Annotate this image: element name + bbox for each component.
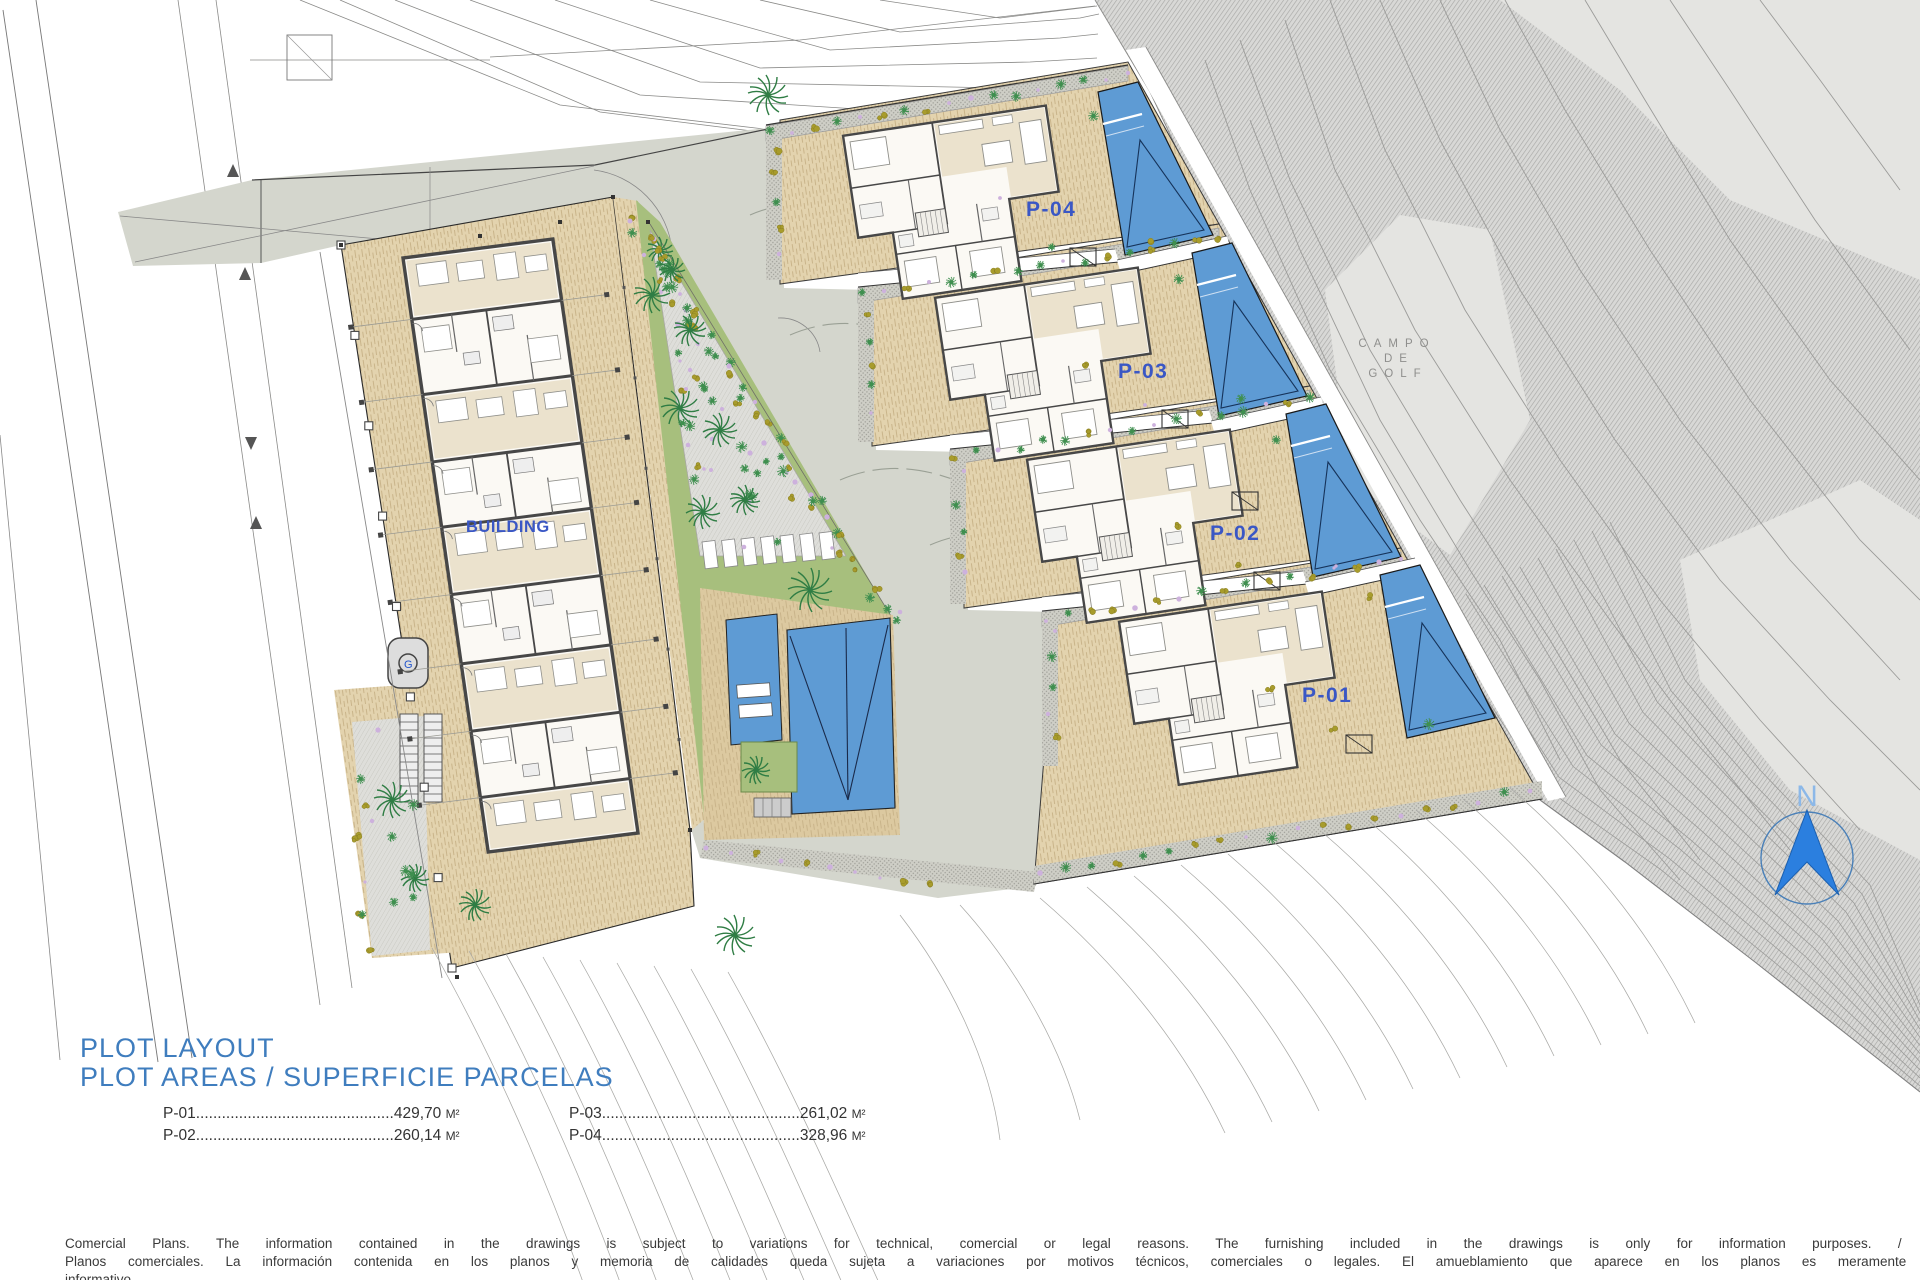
svg-text:P-01: P-01: [1302, 684, 1352, 707]
svg-text:N: N: [1796, 780, 1818, 813]
svg-text:PLOT AREAS / SUPERFICIE PARCEL: PLOT AREAS / SUPERFICIE PARCELAS: [80, 1062, 614, 1092]
svg-text:P-04: P-04: [1026, 198, 1076, 221]
svg-text:GOLF: GOLF: [1368, 368, 1427, 380]
svg-text:P-03..........................: P-03....................................…: [569, 1105, 866, 1122]
svg-text:P-02..........................: P-02....................................…: [163, 1127, 460, 1144]
svg-text:P-02: P-02: [1210, 522, 1260, 545]
svg-text:DE: DE: [1384, 353, 1414, 365]
svg-text:CAMPO: CAMPO: [1358, 338, 1435, 350]
svg-text:PLOT LAYOUT: PLOT LAYOUT: [80, 1033, 275, 1063]
svg-text:informativo.: informativo.: [65, 1272, 135, 1280]
svg-text:G: G: [404, 659, 413, 671]
svg-text:P-03: P-03: [1118, 360, 1168, 383]
svg-text:BUILDING: BUILDING: [466, 518, 550, 536]
svg-text:Comercial Plans. The informati: Comercial Plans. The information contain…: [65, 1236, 1902, 1251]
svg-text:P-04..........................: P-04....................................…: [569, 1127, 866, 1144]
svg-text:Planos comerciales. La informa: Planos comerciales. La información conte…: [65, 1254, 1906, 1269]
svg-text:P-01..........................: P-01....................................…: [163, 1105, 460, 1122]
